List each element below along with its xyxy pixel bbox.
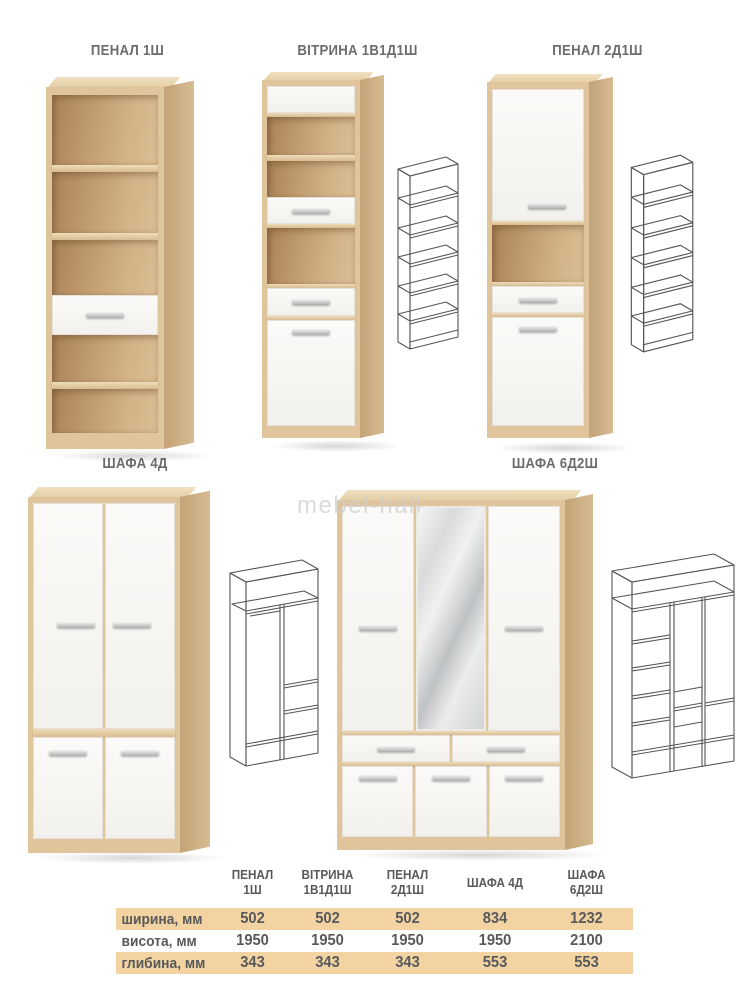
spec-value: 2100	[544, 932, 630, 950]
spec-col-header: ШАФА 6Д2Ш	[545, 868, 629, 898]
door	[105, 503, 175, 729]
drawer	[492, 286, 584, 313]
door-handle	[292, 329, 330, 334]
drawer-handle	[519, 297, 557, 302]
product-photo-vitrina-1v1d1sh	[262, 72, 388, 447]
drawer	[267, 288, 355, 316]
spec-value: 1950	[293, 932, 362, 950]
spec-col-header: ПЕНАЛ 1Ш	[219, 868, 287, 898]
wardrobe-top	[30, 487, 196, 497]
watermark: mebel-hall	[297, 492, 423, 520]
wardrobe-side	[565, 494, 593, 850]
product-label-penal-1sh: ПЕНАЛ 1Ш	[59, 42, 195, 59]
spec-value: 502	[368, 910, 446, 928]
door-handle	[359, 775, 397, 780]
door	[342, 766, 413, 837]
door-handle	[432, 775, 470, 780]
door	[342, 506, 414, 731]
open-niche	[492, 225, 584, 282]
door	[415, 766, 486, 837]
product-photo-shafa-4d	[28, 487, 213, 859]
product-photo-penal-1sh	[46, 77, 196, 457]
open-shelf	[267, 161, 355, 197]
cabinet-side	[589, 77, 613, 438]
door-handle	[49, 750, 87, 755]
open-shelf	[52, 335, 158, 382]
spec-value: 343	[293, 954, 362, 972]
floor-shadow	[270, 440, 404, 452]
floor-shadow	[54, 450, 212, 462]
spec-value: 1950	[454, 932, 537, 950]
spec-value: 502	[218, 910, 287, 928]
product-label-shafa-6d2sh: ШАФА 6Д2Ш	[485, 455, 626, 472]
open-shelf	[52, 240, 158, 295]
wireframe-diagram-penal-2d1sh	[616, 148, 704, 358]
floor-shadow	[495, 442, 633, 454]
door-handle	[505, 625, 543, 630]
door	[267, 320, 355, 426]
product-label-vitrina-1v1d1sh: ВІТРИНА 1В1Д1Ш	[289, 42, 425, 59]
cabinet-side	[164, 81, 194, 449]
door	[489, 766, 560, 837]
divider-board	[33, 729, 175, 737]
spec-data-row: глибина, мм343343343553553	[116, 952, 633, 974]
door	[33, 737, 103, 839]
spec-value: 502	[293, 910, 362, 928]
cabinet-side	[360, 75, 384, 438]
open-shelf	[52, 389, 158, 433]
wardrobe-front	[337, 500, 565, 850]
spec-row-header: ширина, мм	[116, 911, 207, 928]
wardrobe-front	[28, 497, 180, 853]
door-handle	[505, 775, 543, 780]
spec-value: 1950	[218, 932, 287, 950]
spec-row-header: висота, мм	[116, 933, 207, 950]
open-shelf	[52, 95, 158, 165]
shelf-board	[52, 382, 158, 389]
door	[492, 89, 584, 221]
door-handle	[57, 622, 95, 627]
drawer-handle	[86, 312, 124, 317]
cabinet-top	[264, 72, 374, 80]
dimensions-table: ПЕНАЛ 1ШВІТРИНА 1В1Д1ШПЕНАЛ 2Д1ШШАФА 4ДШ…	[116, 858, 633, 974]
spec-value: 553	[454, 954, 537, 972]
spec-value: 553	[544, 954, 630, 972]
drawer-handle	[292, 208, 330, 213]
door-handle	[121, 750, 159, 755]
spec-data-row: висота, мм19501950195019502100	[116, 930, 633, 952]
drawer	[267, 197, 355, 224]
door	[492, 317, 584, 426]
spec-value: 834	[454, 910, 537, 928]
spec-value: 1950	[368, 932, 446, 950]
product-photo-shafa-6d2sh	[337, 490, 597, 856]
drawer-handle	[292, 299, 330, 304]
spec-col-header: ШАФА 4Д	[455, 876, 536, 891]
spec-row-header: глибина, мм	[116, 955, 207, 972]
spec-col-header: ПЕНАЛ 2Д1Ш	[369, 868, 446, 898]
drawer	[52, 295, 158, 335]
catalog-page: ПЕНАЛ 1Ш ВІТРИНА 1В1Д1Ш ПЕНАЛ 2Д1Ш ШАФА …	[0, 0, 742, 1000]
spec-value: 343	[218, 954, 287, 972]
shelf-board	[52, 233, 158, 240]
wireframe-diagram-shafa-6d2sh	[598, 552, 740, 787]
cabinet-front	[487, 82, 589, 438]
spec-value: 343	[368, 954, 446, 972]
cabinet-top	[489, 74, 603, 82]
wardrobe-side	[180, 491, 210, 853]
wireframe-diagram-shafa-4d	[216, 556, 324, 774]
door-handle	[113, 622, 151, 627]
door-handle	[528, 203, 566, 208]
cabinet-front	[262, 80, 360, 438]
open-shelf	[52, 172, 158, 233]
wireframe-diagram-vitrina	[388, 150, 464, 355]
drawer-handle	[487, 746, 525, 751]
mirror	[416, 506, 486, 731]
product-label-penal-2d1sh: ПЕНАЛ 2Д1Ш	[529, 42, 665, 59]
drawer-handle	[377, 746, 415, 751]
cabinet-top	[48, 77, 180, 87]
drawer	[342, 735, 450, 762]
door	[33, 503, 103, 729]
door	[105, 737, 175, 839]
drawer	[452, 735, 560, 762]
door-handle	[519, 326, 557, 331]
product-photo-penal-2d1sh	[487, 74, 617, 449]
open-niche	[267, 228, 355, 284]
vitrine-door	[267, 86, 355, 113]
open-shelf	[267, 117, 355, 155]
spec-header-row: ПЕНАЛ 1ШВІТРИНА 1В1Д1ШПЕНАЛ 2Д1ШШАФА 4ДШ…	[116, 858, 633, 908]
spec-data-row: ширина, мм5025025028341232	[116, 908, 633, 930]
spec-value: 1232	[544, 910, 630, 928]
door-handle	[359, 625, 397, 630]
shelf-board	[52, 165, 158, 172]
door	[488, 506, 560, 731]
cabinet-front	[46, 87, 164, 449]
spec-col-header: ВІТРИНА 1В1Д1Ш	[294, 868, 362, 898]
